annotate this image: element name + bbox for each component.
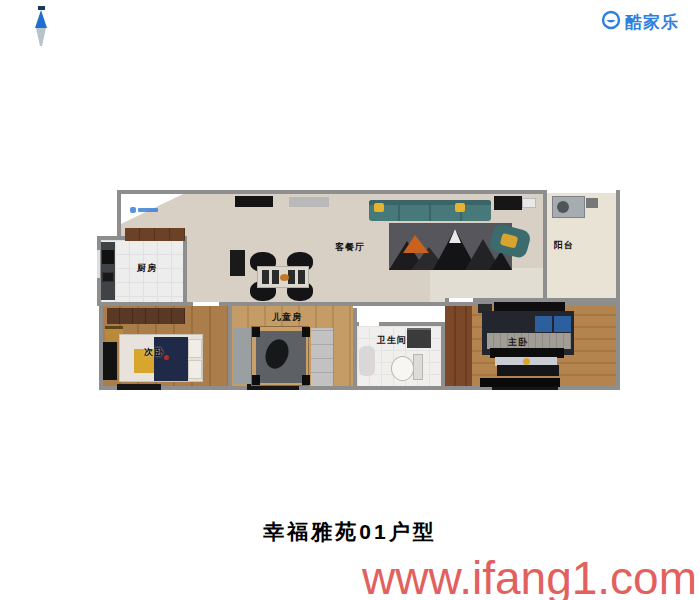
side-table [494,196,522,210]
dresser-kids [233,328,251,384]
living-light-patch [430,268,543,302]
bench-master [497,365,559,376]
headboard-master [494,302,565,311]
room-label-living-dining: 客餐厅 [335,243,365,252]
room-label-master-bedroom: 主卧 [508,338,528,347]
place-mat [288,270,295,284]
red-accent [164,355,169,360]
bed-post [252,375,260,385]
room-label-balcony: 阳台 [554,241,574,250]
sofa-pillow [455,203,465,212]
kitchen-sink [102,272,114,282]
wall [543,190,547,302]
wall [228,306,232,390]
window [117,384,161,390]
yellow-dot [523,358,530,365]
place-mat [272,270,279,284]
wall [117,190,121,240]
place-mat [298,270,305,284]
table-dish [280,274,289,281]
room-label-kids-room: 儿童房 [272,313,302,322]
cabinet-kids [311,328,333,386]
armchair-cushion [500,233,519,249]
kitchen-cabinet [125,228,185,241]
shower [359,346,375,376]
plan-title: 幸福雅苑01户型 [0,518,700,546]
door-gap [193,302,219,306]
balcony-item [586,198,598,208]
washer-door [557,201,569,213]
wall [353,308,357,390]
hallway-floor [445,302,472,386]
wardrobe-second [107,308,185,324]
bed-kids [251,326,309,386]
washer [552,196,585,218]
wardrobe-master [480,378,560,387]
kujiale-logo-text: 酷家乐 [625,11,679,34]
tv-cabinet [235,196,273,207]
floor-plan: 厨房 客餐厅 阳台 次卧 儿童房 卫生间 主卧 [97,190,620,390]
gray-cabinet [289,197,329,207]
wall [117,190,547,194]
sofa [369,200,491,221]
kujiale-mini-logo [130,207,160,214]
window [97,250,100,278]
bed-post [302,327,310,337]
vanity [407,328,431,348]
bed-post [302,375,310,385]
kujiale-logo: 酷家乐 [601,10,679,34]
blue-pillow [535,316,552,332]
bed-second [119,334,203,382]
blue-pillow [554,316,571,332]
headboard-band [487,333,571,349]
sideboard [230,250,245,276]
cooktop [102,250,114,264]
place-mat [262,270,269,284]
toilet-tank [413,354,423,380]
room-label-kitchen: 厨房 [137,264,157,273]
wall [183,240,187,302]
sofa-pillow [374,203,384,212]
bed-pillow [188,339,202,358]
dresser-second [103,342,117,380]
bed-post [252,327,260,337]
wall [441,322,445,390]
door-gap [359,322,379,326]
kujiale-smiley-icon [601,10,621,34]
duvet-navy [154,337,188,381]
toilet-bowl [391,356,414,381]
bed-pillow [188,360,202,379]
side-table-item [522,198,536,208]
north-compass-icon [33,6,49,48]
site-watermark: www.ifang1.com [362,551,697,600]
room-label-second-bedroom: 次卧 [144,348,164,357]
dining-table [257,266,309,288]
door-gap [449,298,473,302]
room-label-bathroom: 卫生间 [377,336,407,345]
wall [616,190,620,390]
